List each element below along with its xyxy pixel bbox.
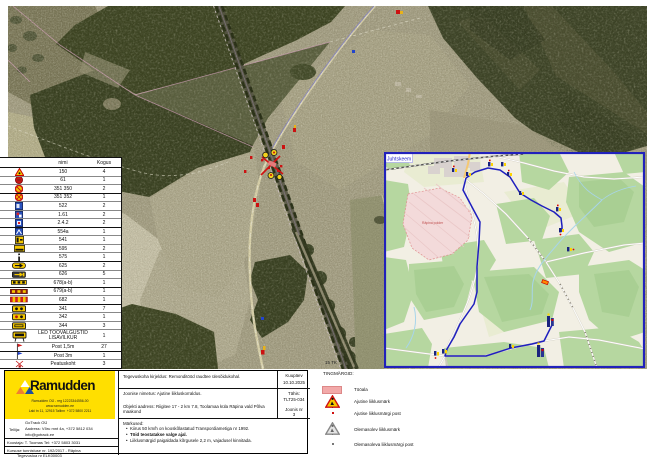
svg-text:Räpina polder: Räpina polder bbox=[422, 221, 444, 225]
svg-text:Juhtskeem: Juhtskeem bbox=[387, 157, 411, 163]
